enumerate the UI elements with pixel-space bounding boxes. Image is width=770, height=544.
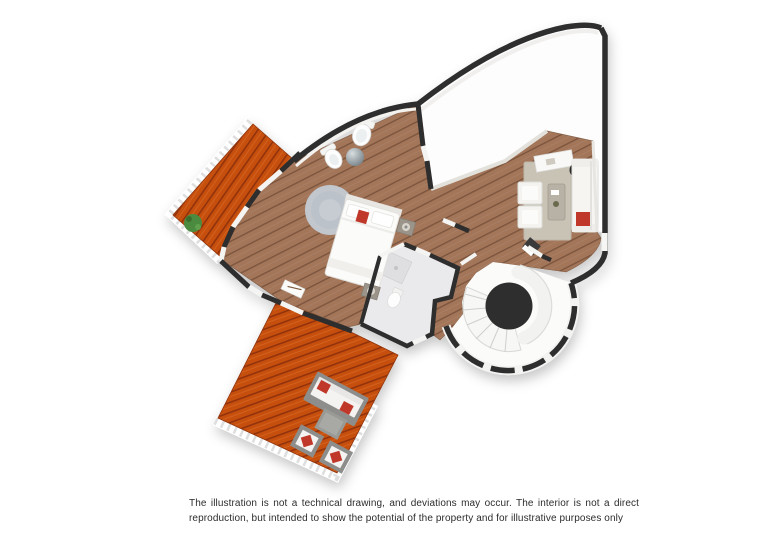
plant-leaf (195, 224, 201, 230)
plant-leaf (186, 216, 192, 222)
decor-sphere (346, 148, 364, 166)
disclaimer-line-1: The illustration is not a technical draw… (189, 497, 639, 512)
bedroom-rug-center (319, 199, 341, 221)
floor-plan-page: The illustration is not a technical draw… (0, 0, 770, 544)
sofa-red-throw (576, 212, 590, 226)
armchair (518, 182, 542, 204)
armchair (518, 206, 542, 228)
disclaimer-text: The illustration is not a technical draw… (189, 497, 639, 526)
door-threshold (249, 287, 262, 295)
disclaimer-line-2: reproduction, but intended to show the p… (189, 512, 639, 527)
coffee-table (548, 184, 565, 220)
floor-plan-illustration (0, 0, 770, 544)
stair-core (486, 283, 533, 330)
door-threshold (221, 247, 224, 261)
